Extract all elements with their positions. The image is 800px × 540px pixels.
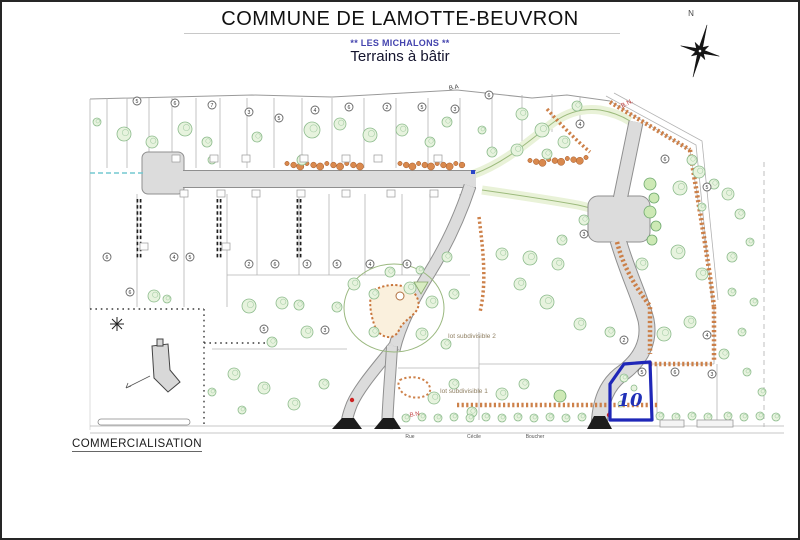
tree xyxy=(450,413,458,421)
tree xyxy=(693,166,705,178)
plot-marker xyxy=(342,155,350,162)
tree xyxy=(385,267,395,277)
tree xyxy=(579,215,589,225)
tree xyxy=(148,290,160,302)
shrub xyxy=(446,163,453,170)
plan-page: 56735462536465364526354653645632 10 B.AB… xyxy=(0,0,800,540)
road-surface xyxy=(620,122,636,200)
tree xyxy=(719,349,729,359)
plot-marker xyxy=(217,190,225,197)
road-surface xyxy=(387,346,392,429)
tree-tag-number: 5 xyxy=(136,99,139,105)
shrub xyxy=(422,162,428,168)
dimension-arrow xyxy=(126,376,150,388)
plot-marker xyxy=(387,190,395,197)
tree xyxy=(540,295,554,309)
shrub xyxy=(565,156,569,160)
tree xyxy=(735,209,745,219)
tree-tag-number: 5 xyxy=(706,185,709,191)
tree xyxy=(758,388,766,396)
tree xyxy=(428,392,440,404)
plot-marker xyxy=(374,155,382,162)
tree xyxy=(523,251,537,265)
survey-mark xyxy=(110,317,124,331)
tree xyxy=(425,137,435,147)
shrub xyxy=(356,163,363,170)
tree xyxy=(530,414,538,422)
shrub xyxy=(350,162,356,168)
plot-marker xyxy=(210,155,218,162)
site-plan-map: 56735462536465364526354653645632 10 B.AB… xyxy=(2,2,800,540)
shrub xyxy=(291,162,297,168)
tree xyxy=(238,406,246,414)
tree-tag-number: 6 xyxy=(129,290,132,296)
tree xyxy=(649,193,659,203)
tree xyxy=(442,252,452,262)
tree xyxy=(442,117,452,127)
tree-tag-number: 3 xyxy=(248,110,251,116)
tree-tag-number: 5 xyxy=(263,327,266,333)
driveway xyxy=(660,420,684,427)
tree xyxy=(294,300,304,310)
tree xyxy=(554,390,566,402)
tree xyxy=(516,108,528,120)
road-entrance xyxy=(332,418,362,429)
tree xyxy=(558,136,570,148)
tree xyxy=(93,118,101,126)
tree xyxy=(746,238,754,246)
tree xyxy=(404,282,416,294)
shrub xyxy=(552,158,558,164)
tree-tag-number: 4 xyxy=(173,255,176,261)
tree xyxy=(743,368,751,376)
tree-tag-number: 6 xyxy=(174,101,177,107)
tree xyxy=(208,388,216,396)
tree xyxy=(416,328,428,340)
well-ring xyxy=(396,292,404,300)
tree xyxy=(557,235,567,245)
tree xyxy=(178,122,192,136)
map-label: B.A xyxy=(449,84,460,92)
site-boundary-top xyxy=(90,90,610,101)
shrub xyxy=(441,162,447,168)
shrub xyxy=(454,161,458,165)
lot-10-number: 10 xyxy=(617,390,643,411)
page-title: COMMUNE DE LAMOTTE-BEUVRON xyxy=(2,8,798,31)
tree xyxy=(572,101,582,111)
building-footprint xyxy=(152,344,180,392)
tree xyxy=(519,379,529,389)
tree-tag-number: 6 xyxy=(348,105,351,111)
tree xyxy=(482,413,490,421)
tree xyxy=(276,297,288,309)
tree xyxy=(738,328,746,336)
tree xyxy=(562,414,570,422)
tree-tag-number: 7 xyxy=(211,103,214,109)
subtitle-terrains: Terrains à bâtir xyxy=(2,48,798,65)
tree xyxy=(535,123,549,137)
tree xyxy=(301,326,313,338)
tree xyxy=(644,178,656,190)
tree xyxy=(496,248,508,260)
tree-tag-number: 6 xyxy=(488,93,491,99)
shrub xyxy=(571,157,577,163)
turnaround-surface xyxy=(589,197,649,241)
tree xyxy=(727,252,737,262)
tree xyxy=(363,128,377,142)
plot-marker xyxy=(172,155,180,162)
plot-marker xyxy=(180,190,188,197)
tree-tag-number: 4 xyxy=(369,262,372,268)
tree xyxy=(426,296,438,308)
tree xyxy=(304,122,320,138)
tree xyxy=(332,302,342,312)
tree xyxy=(163,295,171,303)
tree xyxy=(728,288,736,296)
tree xyxy=(202,137,212,147)
shrub xyxy=(416,161,420,165)
tree-tag-number: 5 xyxy=(336,262,339,268)
tree xyxy=(369,327,379,337)
tree xyxy=(578,413,586,421)
tree xyxy=(228,368,240,380)
map-label: lot subdivisible 1 xyxy=(440,388,488,395)
title-underline xyxy=(184,33,620,34)
tree xyxy=(546,413,554,421)
road-entrance xyxy=(374,418,401,429)
tree-tag-number: 2 xyxy=(248,262,251,268)
tree xyxy=(756,412,764,420)
shrub xyxy=(325,161,329,165)
shrub xyxy=(317,163,324,170)
street-name-word: Cécile xyxy=(467,434,481,440)
shrub xyxy=(584,155,588,159)
plot-marker xyxy=(252,190,260,197)
tree xyxy=(636,258,648,270)
tree xyxy=(117,127,131,141)
tree xyxy=(146,136,158,148)
commercialisation-label: COMMERCIALISATION xyxy=(72,438,202,452)
tree-tag-number: 3 xyxy=(324,328,327,334)
tree-tag-number: 4 xyxy=(706,333,709,339)
shrub xyxy=(539,159,546,166)
tree-tag-number: 6 xyxy=(406,262,409,268)
tree xyxy=(620,374,628,382)
tree xyxy=(498,414,506,422)
tree xyxy=(542,149,552,159)
tree xyxy=(288,398,300,410)
building-annex xyxy=(157,339,163,346)
hedge-run xyxy=(398,377,430,397)
tree-tag-number: 3 xyxy=(306,262,309,268)
shrub xyxy=(558,158,565,165)
tree xyxy=(319,379,329,389)
plot-marker xyxy=(242,155,250,162)
tree xyxy=(449,289,459,299)
tree xyxy=(651,221,661,231)
plot-marker xyxy=(140,243,148,250)
shrub xyxy=(528,158,532,162)
tree xyxy=(684,316,696,328)
tree xyxy=(478,126,486,134)
tree-tag-number: 3 xyxy=(583,232,586,238)
tree xyxy=(252,132,262,142)
tree xyxy=(267,337,277,347)
tree-tag-number: 6 xyxy=(274,262,277,268)
shrub xyxy=(459,162,465,168)
tree xyxy=(687,155,697,165)
tree xyxy=(722,188,734,200)
tree-tag-number: 5 xyxy=(278,116,281,122)
street-name-word: Rue xyxy=(405,434,414,440)
blue-marker xyxy=(471,170,475,174)
tree xyxy=(740,413,748,421)
green-path xyxy=(474,110,630,175)
plot-marker xyxy=(434,155,442,162)
tree xyxy=(656,412,664,420)
plot-marker xyxy=(297,190,305,197)
shrub xyxy=(285,161,289,165)
tree-tag-number: 5 xyxy=(641,370,644,376)
tree xyxy=(396,124,408,136)
tree xyxy=(605,327,615,337)
shrub xyxy=(409,163,416,170)
tree-tag-number: 2 xyxy=(386,105,389,111)
tree xyxy=(514,278,526,290)
tree xyxy=(434,414,442,422)
tree xyxy=(511,144,523,156)
tree-tag-number: 2 xyxy=(623,338,626,344)
tree xyxy=(644,206,656,218)
shrub xyxy=(533,159,539,165)
shrub xyxy=(311,162,317,168)
tree xyxy=(334,118,346,130)
hedge-run xyxy=(479,217,484,312)
tree-tag-number: 4 xyxy=(314,108,317,114)
tree xyxy=(369,289,379,299)
tree xyxy=(466,414,474,422)
tree-tag-number: 6 xyxy=(106,255,109,261)
tree xyxy=(772,413,780,421)
hydrant-dot xyxy=(350,398,354,402)
tree xyxy=(724,412,732,420)
shrub xyxy=(576,157,583,164)
tree xyxy=(441,339,451,349)
shrub xyxy=(427,163,434,170)
tree-tag-number: 5 xyxy=(421,105,424,111)
shrub xyxy=(331,162,337,168)
tree xyxy=(647,235,657,245)
map-label: lot subdivisible 2 xyxy=(448,333,496,340)
tree-tag-number: 3 xyxy=(711,372,714,378)
tree xyxy=(657,327,671,341)
plot-marker xyxy=(222,243,230,250)
tree xyxy=(696,268,708,280)
tree-tag-number: 5 xyxy=(189,255,192,261)
tree xyxy=(750,298,758,306)
tree xyxy=(348,278,360,290)
tree xyxy=(416,266,424,274)
street-name-word: Boucher xyxy=(526,434,545,440)
ditch-strip xyxy=(98,419,190,425)
tree xyxy=(242,299,256,313)
tree xyxy=(487,147,497,157)
shrub xyxy=(403,162,409,168)
tree xyxy=(552,258,564,270)
tree xyxy=(574,318,586,330)
tree xyxy=(698,203,706,211)
tree xyxy=(496,388,508,400)
shrub xyxy=(336,163,343,170)
plot-marker xyxy=(300,155,308,162)
tree xyxy=(258,382,270,394)
tree-tag-number: 6 xyxy=(664,157,667,163)
tree-tag-number: 4 xyxy=(579,122,582,128)
tree xyxy=(671,245,685,259)
tree xyxy=(688,412,696,420)
subtitle-les-michalons: ** LES MICHALONS ** xyxy=(2,38,798,48)
plot-marker xyxy=(342,190,350,197)
roads xyxy=(142,122,650,429)
tree xyxy=(514,413,522,421)
plot-marker xyxy=(430,190,438,197)
tree-tag-number: 3 xyxy=(454,107,457,113)
tree xyxy=(673,181,687,195)
driveway xyxy=(697,420,733,427)
shrub xyxy=(398,161,402,165)
tree-tag-number: 6 xyxy=(674,370,677,376)
